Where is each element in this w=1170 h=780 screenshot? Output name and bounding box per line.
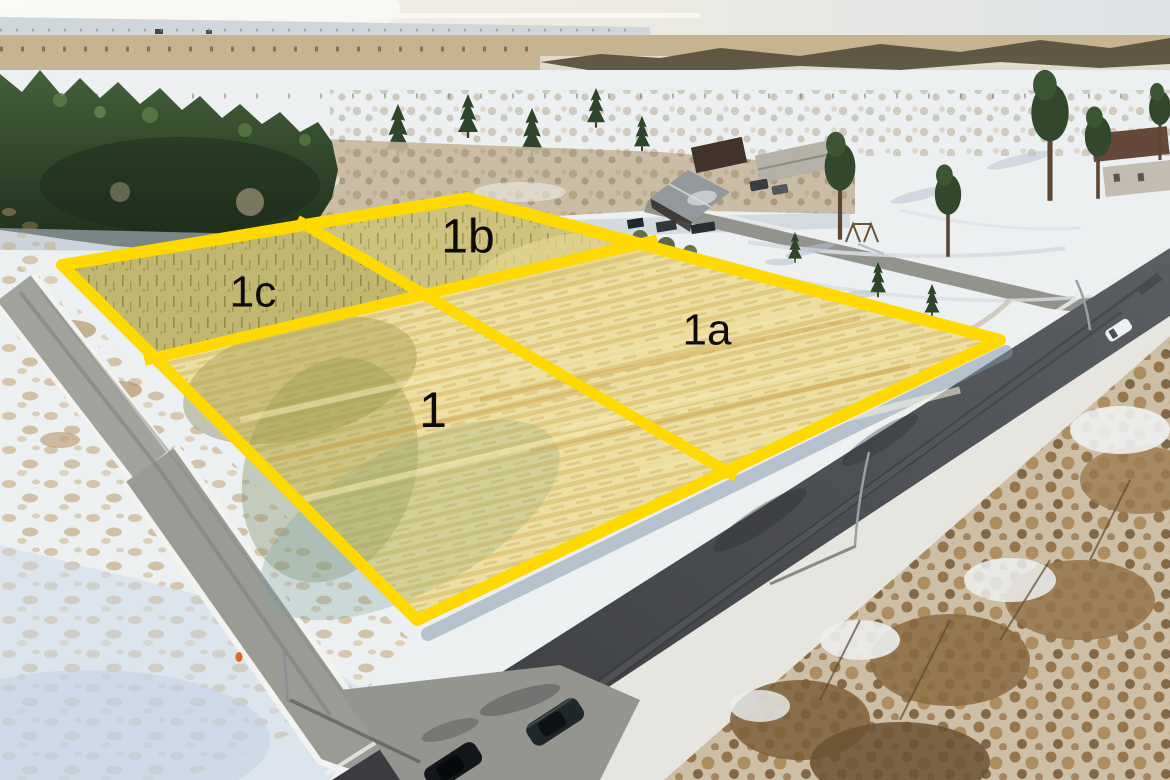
aerial-photo: 1 1a 1b 1c (0, 0, 1170, 780)
plot-1c-label: 1c (230, 268, 276, 317)
orange-marker (236, 652, 243, 662)
snow-patch (1070, 406, 1170, 454)
snow-patch (730, 690, 790, 722)
far-shore-glare (0, 13, 700, 18)
snow-patch (820, 620, 900, 660)
snow-patch (964, 558, 1056, 602)
plot-1a-label: 1a (683, 306, 732, 355)
plot-1-label: 1 (419, 382, 447, 438)
plot-1b-label: 1b (441, 211, 494, 264)
